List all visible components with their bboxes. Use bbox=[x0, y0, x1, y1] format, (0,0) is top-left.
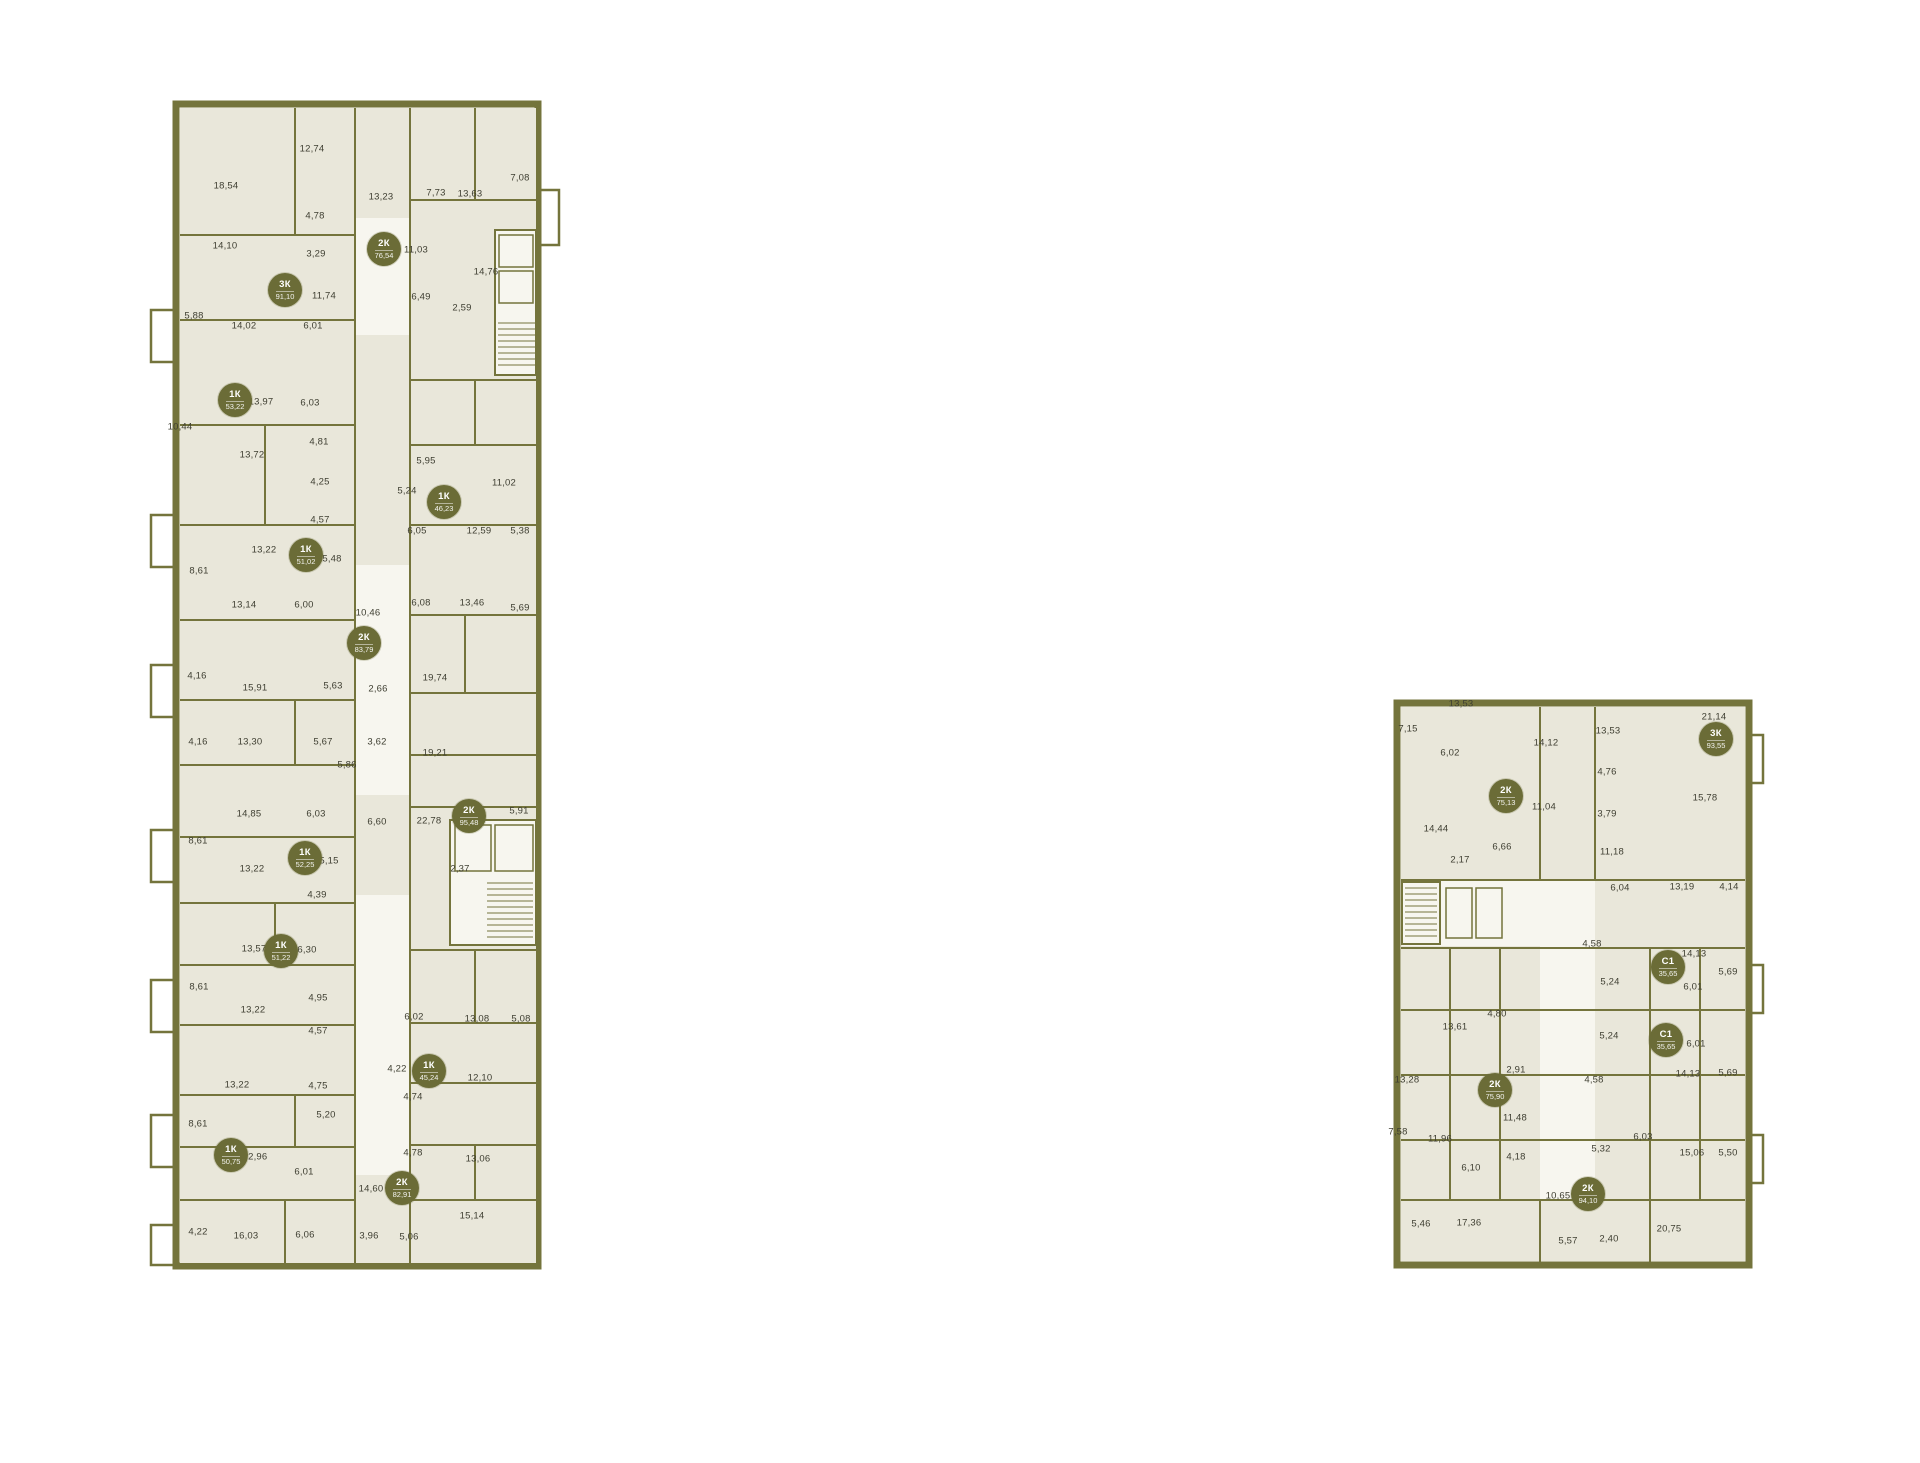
apartment-area-label: 46,23 bbox=[435, 503, 454, 513]
room-area-label: 6,08 bbox=[411, 598, 430, 609]
room-area-label: 14,60 bbox=[359, 1184, 384, 1195]
room-area-label: 6,60 bbox=[367, 817, 386, 828]
apartment-area-label: 82,91 bbox=[393, 1189, 412, 1199]
apartment-area-label: 83,79 bbox=[355, 644, 374, 654]
room-area-label: 4,57 bbox=[308, 1026, 327, 1037]
room-area-label: 14,02 bbox=[232, 321, 257, 332]
room-area-label: 3,79 bbox=[1597, 809, 1616, 820]
room-area-label: 5,24 bbox=[1600, 977, 1619, 988]
room-area-label: 5,46 bbox=[1411, 1219, 1430, 1230]
apartment-badge[interactable]: 2К82,91 bbox=[385, 1171, 419, 1205]
room-area-label: 5,67 bbox=[313, 737, 332, 748]
room-area-label: 4,78 bbox=[403, 1148, 422, 1159]
apartment-area-label: 75,90 bbox=[1486, 1091, 1505, 1101]
apartment-badge[interactable]: 1К51,22 bbox=[264, 934, 298, 968]
room-area-label: 11,74 bbox=[312, 291, 336, 302]
apartment-area-label: 35,65 bbox=[1657, 1041, 1676, 1051]
room-area-label: 5,63 bbox=[323, 681, 342, 692]
room-area-label: 8,61 bbox=[188, 836, 207, 847]
room-area-label: 22,78 bbox=[417, 816, 442, 827]
room-area-label: 2,37 bbox=[450, 864, 469, 875]
room-area-label: 3,62 bbox=[367, 737, 386, 748]
room-area-label: 13,23 bbox=[369, 192, 394, 203]
room-area-label: 2,91 bbox=[1506, 1065, 1525, 1076]
room-area-label: 14,13 bbox=[1682, 949, 1707, 960]
room-area-label: 6,02 bbox=[1440, 748, 1459, 759]
apartment-area-label: 35,65 bbox=[1659, 968, 1678, 978]
apartment-badge[interactable]: С135,65 bbox=[1651, 950, 1685, 984]
apartment-type-label: 2К bbox=[1489, 1080, 1501, 1090]
room-area-label: 13,22 bbox=[241, 1005, 266, 1016]
room-area-label: 14,12 bbox=[1534, 738, 1559, 749]
room-area-label: 13,46 bbox=[460, 598, 485, 609]
apartment-type-label: 1К bbox=[229, 390, 241, 400]
apartment-type-label: 1К bbox=[225, 1145, 237, 1155]
room-area-label: 6,66 bbox=[1492, 842, 1511, 853]
room-area-label: 4,18 bbox=[1506, 1152, 1525, 1163]
room-area-label: 4,22 bbox=[387, 1064, 406, 1075]
apartment-area-label: 52,25 bbox=[296, 859, 315, 869]
apartment-type-label: 1К bbox=[300, 545, 312, 555]
room-area-label: 5,86 bbox=[337, 760, 356, 771]
room-area-label: 5,24 bbox=[397, 486, 416, 497]
room-area-label: 4,39 bbox=[307, 890, 326, 901]
apartment-type-label: 2К bbox=[358, 633, 370, 643]
room-area-label: 14,10 bbox=[213, 241, 238, 252]
room-area-label: 6,01 bbox=[1683, 982, 1702, 993]
room-area-label: 13,22 bbox=[225, 1080, 250, 1091]
building-right-plan: 13,537,1514,1213,5321,146,024,7611,043,7… bbox=[1390, 680, 1765, 1280]
room-area-label: 13,63 bbox=[458, 189, 483, 200]
apartment-badge[interactable]: 2К76,54 bbox=[367, 232, 401, 266]
apartment-area-label: 45,24 bbox=[420, 1072, 439, 1082]
room-area-label: 13,53 bbox=[1449, 699, 1474, 710]
room-area-label: 8,61 bbox=[189, 566, 208, 577]
room-area-label: 5,69 bbox=[510, 603, 529, 614]
room-area-label: 16,03 bbox=[234, 1231, 259, 1242]
apartment-badge[interactable]: 2К83,79 bbox=[347, 626, 381, 660]
room-area-label: 4,22 bbox=[188, 1227, 207, 1238]
room-area-label: 5,91 bbox=[509, 806, 528, 817]
room-area-label: 11,18 bbox=[1600, 847, 1624, 858]
apartment-type-label: 3К bbox=[279, 280, 291, 290]
room-area-label: 11,02 bbox=[492, 478, 516, 489]
room-area-label: 14,76 bbox=[474, 267, 499, 278]
room-area-label: 4,76 bbox=[1597, 767, 1616, 778]
apartment-area-label: 50,75 bbox=[222, 1156, 241, 1166]
building-left-plan: 18,5412,7413,237,7313,637,084,783,2911,0… bbox=[145, 95, 570, 1275]
room-area-label: 15,06 bbox=[1680, 1148, 1705, 1159]
room-area-label: 6,01 bbox=[1686, 1039, 1705, 1050]
apartment-type-label: 2К bbox=[1582, 1184, 1594, 1194]
room-area-label: 5,50 bbox=[1718, 1148, 1737, 1159]
apartment-area-label: 53,22 bbox=[226, 401, 245, 411]
room-area-label: 11,48 bbox=[1503, 1113, 1527, 1124]
room-area-label: 10,46 bbox=[356, 608, 381, 619]
apartment-type-label: 2К bbox=[396, 1178, 408, 1188]
room-area-label: 13,97 bbox=[249, 397, 274, 408]
room-area-label: 4,74 bbox=[403, 1092, 422, 1103]
room-area-label: 17,36 bbox=[1457, 1218, 1482, 1229]
apartment-type-label: 1К bbox=[275, 941, 287, 951]
apartment-type-label: 2К bbox=[378, 239, 390, 249]
room-area-label: 10,44 bbox=[168, 422, 193, 433]
room-area-label: 6,01 bbox=[294, 1167, 313, 1178]
apartment-area-label: 76,54 bbox=[375, 250, 394, 260]
room-area-label: 6,06 bbox=[295, 1230, 314, 1241]
room-area-label: 13,14 bbox=[232, 600, 257, 611]
room-area-label: 4,80 bbox=[1487, 1009, 1506, 1020]
apartment-badge[interactable]: 2К95,48 bbox=[452, 799, 486, 833]
room-area-label: 13,08 bbox=[465, 1014, 490, 1025]
room-area-label: 14,85 bbox=[237, 809, 262, 820]
room-area-label: 14,13 bbox=[1676, 1069, 1701, 1080]
room-area-label: 4,75 bbox=[308, 1081, 327, 1092]
room-area-label: 6,10 bbox=[1461, 1163, 1480, 1174]
room-area-label: 5,95 bbox=[416, 456, 435, 467]
apartment-area-label: 91,10 bbox=[276, 291, 295, 301]
room-area-label: 6,02 bbox=[404, 1012, 423, 1023]
room-area-label: 4,16 bbox=[187, 671, 206, 682]
apartment-badge[interactable]: 1К53,22 bbox=[218, 383, 252, 417]
room-area-label: 5,48 bbox=[322, 554, 341, 565]
apartment-type-label: С1 bbox=[1660, 1030, 1673, 1040]
room-area-label: 20,75 bbox=[1657, 1224, 1682, 1235]
room-area-label: 12,59 bbox=[467, 526, 492, 537]
building-left-labels: 18,5412,7413,237,7313,637,084,783,2911,0… bbox=[145, 95, 570, 1275]
room-area-label: 11,96 bbox=[1428, 1134, 1452, 1145]
room-area-label: 6,03 bbox=[1633, 1132, 1652, 1143]
apartment-type-label: 2К bbox=[463, 806, 475, 816]
apartment-type-label: 2К bbox=[1500, 786, 1512, 796]
room-area-label: 19,21 bbox=[423, 748, 448, 759]
room-area-label: 10,65 bbox=[1546, 1191, 1571, 1202]
building-right-labels: 13,537,1514,1213,5321,146,024,7611,043,7… bbox=[1390, 680, 1765, 1280]
room-area-label: 7,15 bbox=[1398, 724, 1417, 735]
room-area-label: 13,22 bbox=[240, 864, 265, 875]
room-area-label: 5,38 bbox=[510, 526, 529, 537]
room-area-label: 3,96 bbox=[359, 1231, 378, 1242]
apartment-area-label: 93,55 bbox=[1707, 740, 1726, 750]
room-area-label: 5,32 bbox=[1591, 1144, 1610, 1155]
room-area-label: 13,57 bbox=[242, 944, 267, 955]
apartment-badge[interactable]: 1К46,23 bbox=[427, 485, 461, 519]
room-area-label: 8,61 bbox=[189, 982, 208, 993]
room-area-label: 6,04 bbox=[1610, 883, 1629, 894]
apartment-type-label: 1К bbox=[299, 848, 311, 858]
room-area-label: 12,10 bbox=[468, 1073, 493, 1084]
apartment-badge[interactable]: 2К75,13 bbox=[1489, 779, 1523, 813]
room-area-label: 6,01 bbox=[303, 321, 322, 332]
room-area-label: 4,14 bbox=[1719, 882, 1738, 893]
room-area-label: 18,54 bbox=[214, 181, 239, 192]
room-area-label: 6,30 bbox=[297, 945, 316, 956]
room-area-label: 5,69 bbox=[1718, 967, 1737, 978]
apartment-badge[interactable]: 3К91,10 bbox=[268, 273, 302, 307]
apartment-area-label: 51,02 bbox=[297, 556, 316, 566]
room-area-label: 7,73 bbox=[426, 188, 445, 199]
room-area-label: 6,03 bbox=[306, 809, 325, 820]
room-area-label: 7,58 bbox=[1388, 1127, 1407, 1138]
room-area-label: 5,06 bbox=[399, 1232, 418, 1243]
room-area-label: 2,17 bbox=[1450, 855, 1469, 866]
room-area-label: 4,58 bbox=[1584, 1075, 1603, 1086]
apartment-badge[interactable]: 1К50,75 bbox=[214, 1138, 248, 1172]
room-area-label: 5,24 bbox=[1599, 1031, 1618, 1042]
room-area-label: 5,69 bbox=[1718, 1068, 1737, 1079]
apartment-area-label: 95,48 bbox=[460, 817, 479, 827]
apartment-area-label: 51,22 bbox=[272, 952, 291, 962]
room-area-label: 12,74 bbox=[300, 144, 325, 155]
apartment-badge[interactable]: 3К93,55 bbox=[1699, 722, 1733, 756]
apartment-type-label: 3К bbox=[1710, 729, 1722, 739]
room-area-label: 13,19 bbox=[1670, 882, 1695, 893]
room-area-label: 4,95 bbox=[308, 993, 327, 1004]
room-area-label: 4,58 bbox=[1582, 939, 1601, 950]
apartment-badge[interactable]: 1К52,25 bbox=[288, 841, 322, 875]
apartment-badge[interactable]: 2К94,10 bbox=[1571, 1177, 1605, 1211]
room-area-label: 21,14 bbox=[1702, 712, 1727, 723]
apartment-badge[interactable]: 2К75,90 bbox=[1478, 1073, 1512, 1107]
room-area-label: 3,29 bbox=[306, 249, 325, 260]
room-area-label: 7,08 bbox=[510, 173, 529, 184]
room-area-label: 13,61 bbox=[1443, 1022, 1468, 1033]
room-area-label: 13,30 bbox=[238, 737, 263, 748]
room-area-label: 11,03 bbox=[404, 245, 428, 256]
room-area-label: 5,08 bbox=[511, 1014, 530, 1025]
floorplan-page: { "page": { "background": "#ffffff", "de… bbox=[0, 0, 1920, 1463]
apartment-area-label: 75,13 bbox=[1497, 797, 1516, 807]
room-area-label: 5,15 bbox=[319, 856, 338, 867]
apartment-type-label: С1 bbox=[1662, 957, 1675, 967]
room-area-label: 8,61 bbox=[188, 1119, 207, 1130]
room-area-label: 4,81 bbox=[309, 437, 328, 448]
room-area-label: 15,14 bbox=[460, 1211, 485, 1222]
room-area-label: 5,57 bbox=[1558, 1236, 1577, 1247]
room-area-label: 6,49 bbox=[411, 292, 430, 303]
room-area-label: 14,44 bbox=[1424, 824, 1449, 835]
room-area-label: 13,06 bbox=[466, 1154, 491, 1165]
room-area-label: 2,40 bbox=[1599, 1234, 1618, 1245]
apartment-type-label: 1К bbox=[423, 1061, 435, 1071]
room-area-label: 4,25 bbox=[310, 477, 329, 488]
room-area-label: 6,00 bbox=[294, 600, 313, 611]
room-area-label: 6,05 bbox=[407, 526, 426, 537]
apartment-area-label: 94,10 bbox=[1579, 1195, 1598, 1205]
room-area-label: 6,03 bbox=[300, 398, 319, 409]
room-area-label: 11,04 bbox=[1532, 802, 1556, 813]
room-area-label: 19,74 bbox=[423, 673, 448, 684]
room-area-label: 13,72 bbox=[240, 450, 265, 461]
room-area-label: 5,88 bbox=[184, 311, 203, 322]
room-area-label: 13,53 bbox=[1596, 726, 1621, 737]
room-area-label: 4,78 bbox=[305, 211, 324, 222]
apartment-badge[interactable]: С135,65 bbox=[1649, 1023, 1683, 1057]
room-area-label: 5,20 bbox=[316, 1110, 335, 1121]
apartment-badge[interactable]: 1К45,24 bbox=[412, 1054, 446, 1088]
room-area-label: 13,28 bbox=[1395, 1075, 1420, 1086]
room-area-label: 4,57 bbox=[310, 515, 329, 526]
apartment-badge[interactable]: 1К51,02 bbox=[289, 538, 323, 572]
room-area-label: 15,91 bbox=[243, 683, 268, 694]
room-area-label: 15,78 bbox=[1693, 793, 1718, 804]
apartment-type-label: 1К bbox=[438, 492, 450, 502]
room-area-label: 2,59 bbox=[452, 303, 471, 314]
room-area-label: 2,66 bbox=[368, 684, 387, 695]
room-area-label: 4,16 bbox=[188, 737, 207, 748]
room-area-label: 13,22 bbox=[252, 545, 277, 556]
